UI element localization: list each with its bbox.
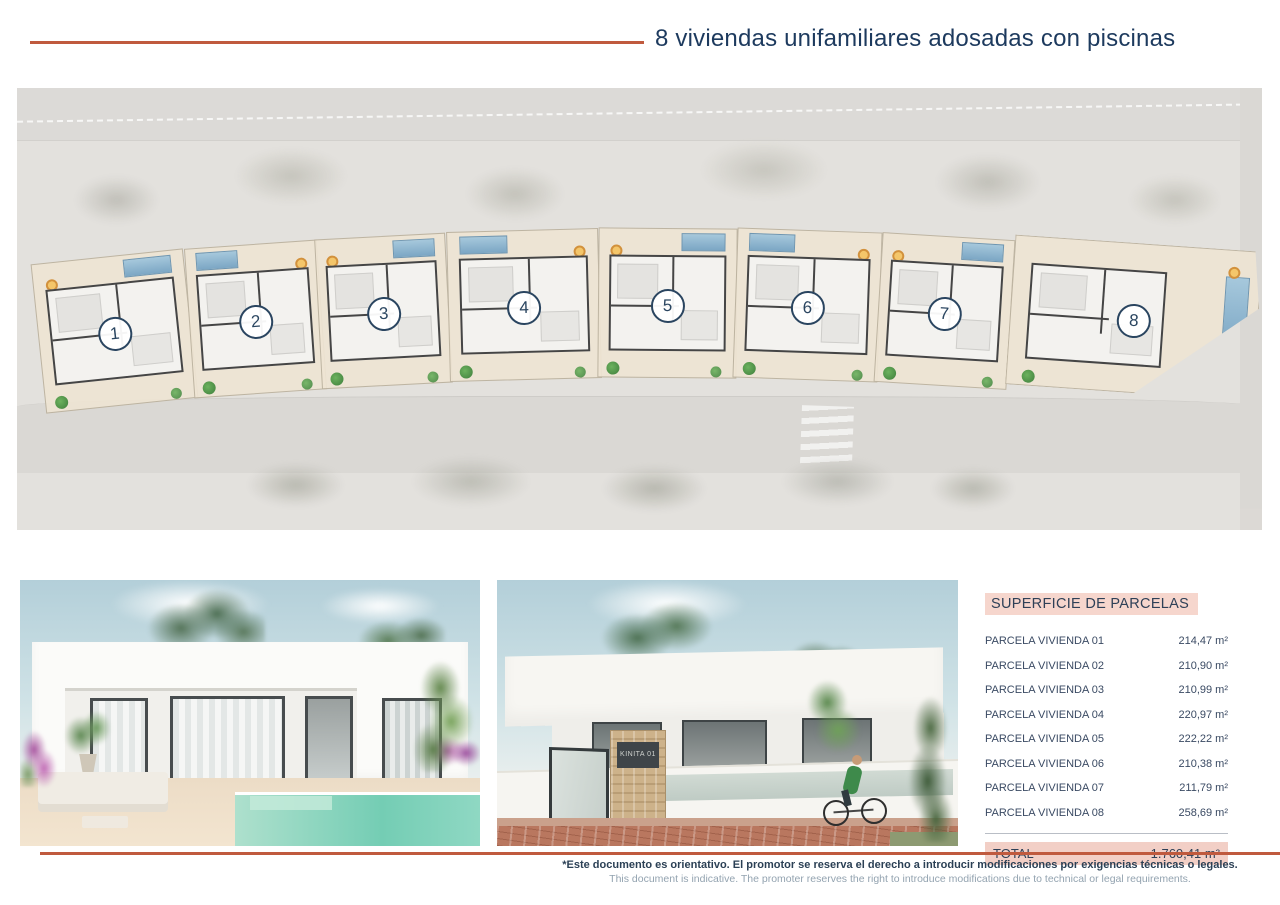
table-row: PARCELA VIVIENDA 05 222,22 m² — [985, 727, 1228, 752]
footer-accent-line — [40, 852, 1280, 855]
house-plan-unit: 2 — [184, 240, 327, 399]
table-row: PARCELA VIVIENDA 02 210,90 m² — [985, 654, 1228, 679]
house-plan-unit: 1 — [31, 248, 199, 413]
tree-icon — [330, 372, 344, 386]
banana-plant — [408, 660, 480, 772]
table-row: PARCELA VIVIENDA 03 210,99 m² — [985, 678, 1228, 703]
house-plan-unit: 6 — [732, 228, 882, 383]
room — [269, 323, 306, 355]
tree-icon — [981, 376, 993, 388]
room — [821, 313, 860, 344]
tree-icon — [851, 370, 862, 381]
page-title: 8 viviendas unifamiliares adosadas con p… — [655, 25, 1175, 53]
table-row: PARCELA VIVIENDA 01 214,47 m² — [985, 629, 1228, 654]
bicycle-wheel — [861, 798, 887, 824]
parcel-label: PARCELA VIVIENDA 03 — [985, 678, 1104, 703]
disclaimer-es: *Este documento es orientativo. El promo… — [530, 859, 1270, 873]
surface-table: SUPERFICIE DE PARCELAS PARCELA VIVIENDA … — [985, 593, 1228, 865]
tree-icon — [711, 366, 722, 377]
parcel-area-value: 258,69 m² — [1178, 801, 1228, 826]
render-pool-view — [20, 580, 480, 846]
tree-icon — [55, 395, 69, 409]
pool-icon — [122, 255, 172, 278]
room — [131, 332, 174, 366]
tree-icon — [742, 362, 755, 375]
pool-step — [250, 796, 332, 810]
parcel-area-value: 210,90 m² — [1178, 654, 1228, 679]
tree-icon — [301, 378, 313, 390]
room — [540, 311, 580, 342]
tree-icon — [427, 371, 439, 383]
coffee-table — [82, 816, 128, 828]
tree-icon — [1021, 369, 1035, 383]
house-plan-unit: 4 — [446, 228, 602, 382]
disclaimer-en: This document is indicative. The promote… — [530, 873, 1270, 887]
bougainvillea — [20, 725, 60, 787]
table-rows: PARCELA VIVIENDA 01 214,47 m² PARCELA VI… — [985, 629, 1228, 825]
room — [397, 316, 433, 347]
banana-plant — [795, 675, 867, 767]
room — [955, 319, 991, 351]
pool-icon — [749, 233, 795, 253]
tree-icon — [607, 361, 620, 374]
site-plan: 1 2 3 — [17, 88, 1262, 530]
parcel-label: PARCELA VIVIENDA 04 — [985, 703, 1104, 728]
bush — [903, 690, 958, 842]
pool-icon — [196, 250, 239, 271]
table-row: PARCELA VIVIENDA 07 211,79 m² — [985, 776, 1228, 801]
room — [55, 294, 103, 334]
tree-icon — [202, 381, 216, 395]
house-plan-unit: 3 — [314, 233, 453, 390]
brick-pavement — [497, 826, 958, 846]
tree-icon — [1216, 387, 1228, 399]
brochure-page: 8 viviendas unifamiliares adosadas con p… — [0, 0, 1280, 905]
header-accent-line — [30, 41, 644, 44]
house-plan-unit: 7 — [874, 232, 1016, 390]
pool-icon — [1221, 276, 1250, 351]
parcel-area-value: 220,97 m² — [1178, 703, 1228, 728]
table-row: PARCELA VIVIENDA 04 220,97 m² — [985, 703, 1228, 728]
parcel-label: PARCELA VIVIENDA 08 — [985, 801, 1104, 826]
parcel-area-value: 222,22 m² — [1178, 727, 1228, 752]
parcel-area-value: 211,79 m² — [1179, 776, 1228, 801]
cyclist-head — [852, 755, 862, 765]
room — [617, 264, 658, 299]
house-plans-strip: 1 2 3 — [17, 88, 1262, 530]
parcel-label: PARCELA VIVIENDA 07 — [985, 776, 1104, 801]
room — [681, 310, 717, 340]
pool-icon — [459, 235, 507, 254]
parcel-area-value: 214,47 m² — [1178, 629, 1228, 654]
render-street-view: KINITA 01 — [497, 580, 958, 846]
window — [682, 720, 767, 770]
parcel-label: PARCELA VIVIENDA 05 — [985, 727, 1104, 752]
tree-icon — [170, 387, 182, 399]
pool-icon — [393, 238, 435, 258]
table-divider — [985, 833, 1228, 834]
table-title: SUPERFICIE DE PARCELAS — [985, 593, 1198, 615]
potted-plant — [60, 708, 112, 758]
tree-icon — [883, 366, 897, 380]
parcel-label: PARCELA VIVIENDA 02 — [985, 654, 1104, 679]
house-number-badge: 5 — [650, 289, 684, 323]
window — [170, 696, 285, 782]
tree-icon — [575, 366, 586, 377]
house-plan-unit: 8 — [1005, 235, 1263, 402]
window — [305, 696, 353, 782]
disclaimer: *Este documento es orientativo. El promo… — [530, 859, 1270, 886]
room — [468, 267, 513, 303]
pool-icon — [961, 242, 1004, 263]
parcel-label: PARCELA VIVIENDA 06 — [985, 752, 1104, 777]
parcel-label: PARCELA VIVIENDA 01 — [985, 629, 1104, 654]
table-row: PARCELA VIVIENDA 08 258,69 m² — [985, 801, 1228, 826]
table-row: PARCELA VIVIENDA 06 210,38 m² — [985, 752, 1228, 777]
pool-icon — [682, 233, 726, 251]
parcel-area-value: 210,99 m² — [1178, 678, 1228, 703]
house-sign: KINITA 01 — [617, 742, 659, 768]
tree-icon — [460, 365, 473, 378]
house-plan-unit: 5 — [597, 227, 737, 378]
room — [755, 265, 799, 302]
parcel-area-value: 210,38 m² — [1178, 752, 1228, 777]
room — [1039, 273, 1088, 311]
